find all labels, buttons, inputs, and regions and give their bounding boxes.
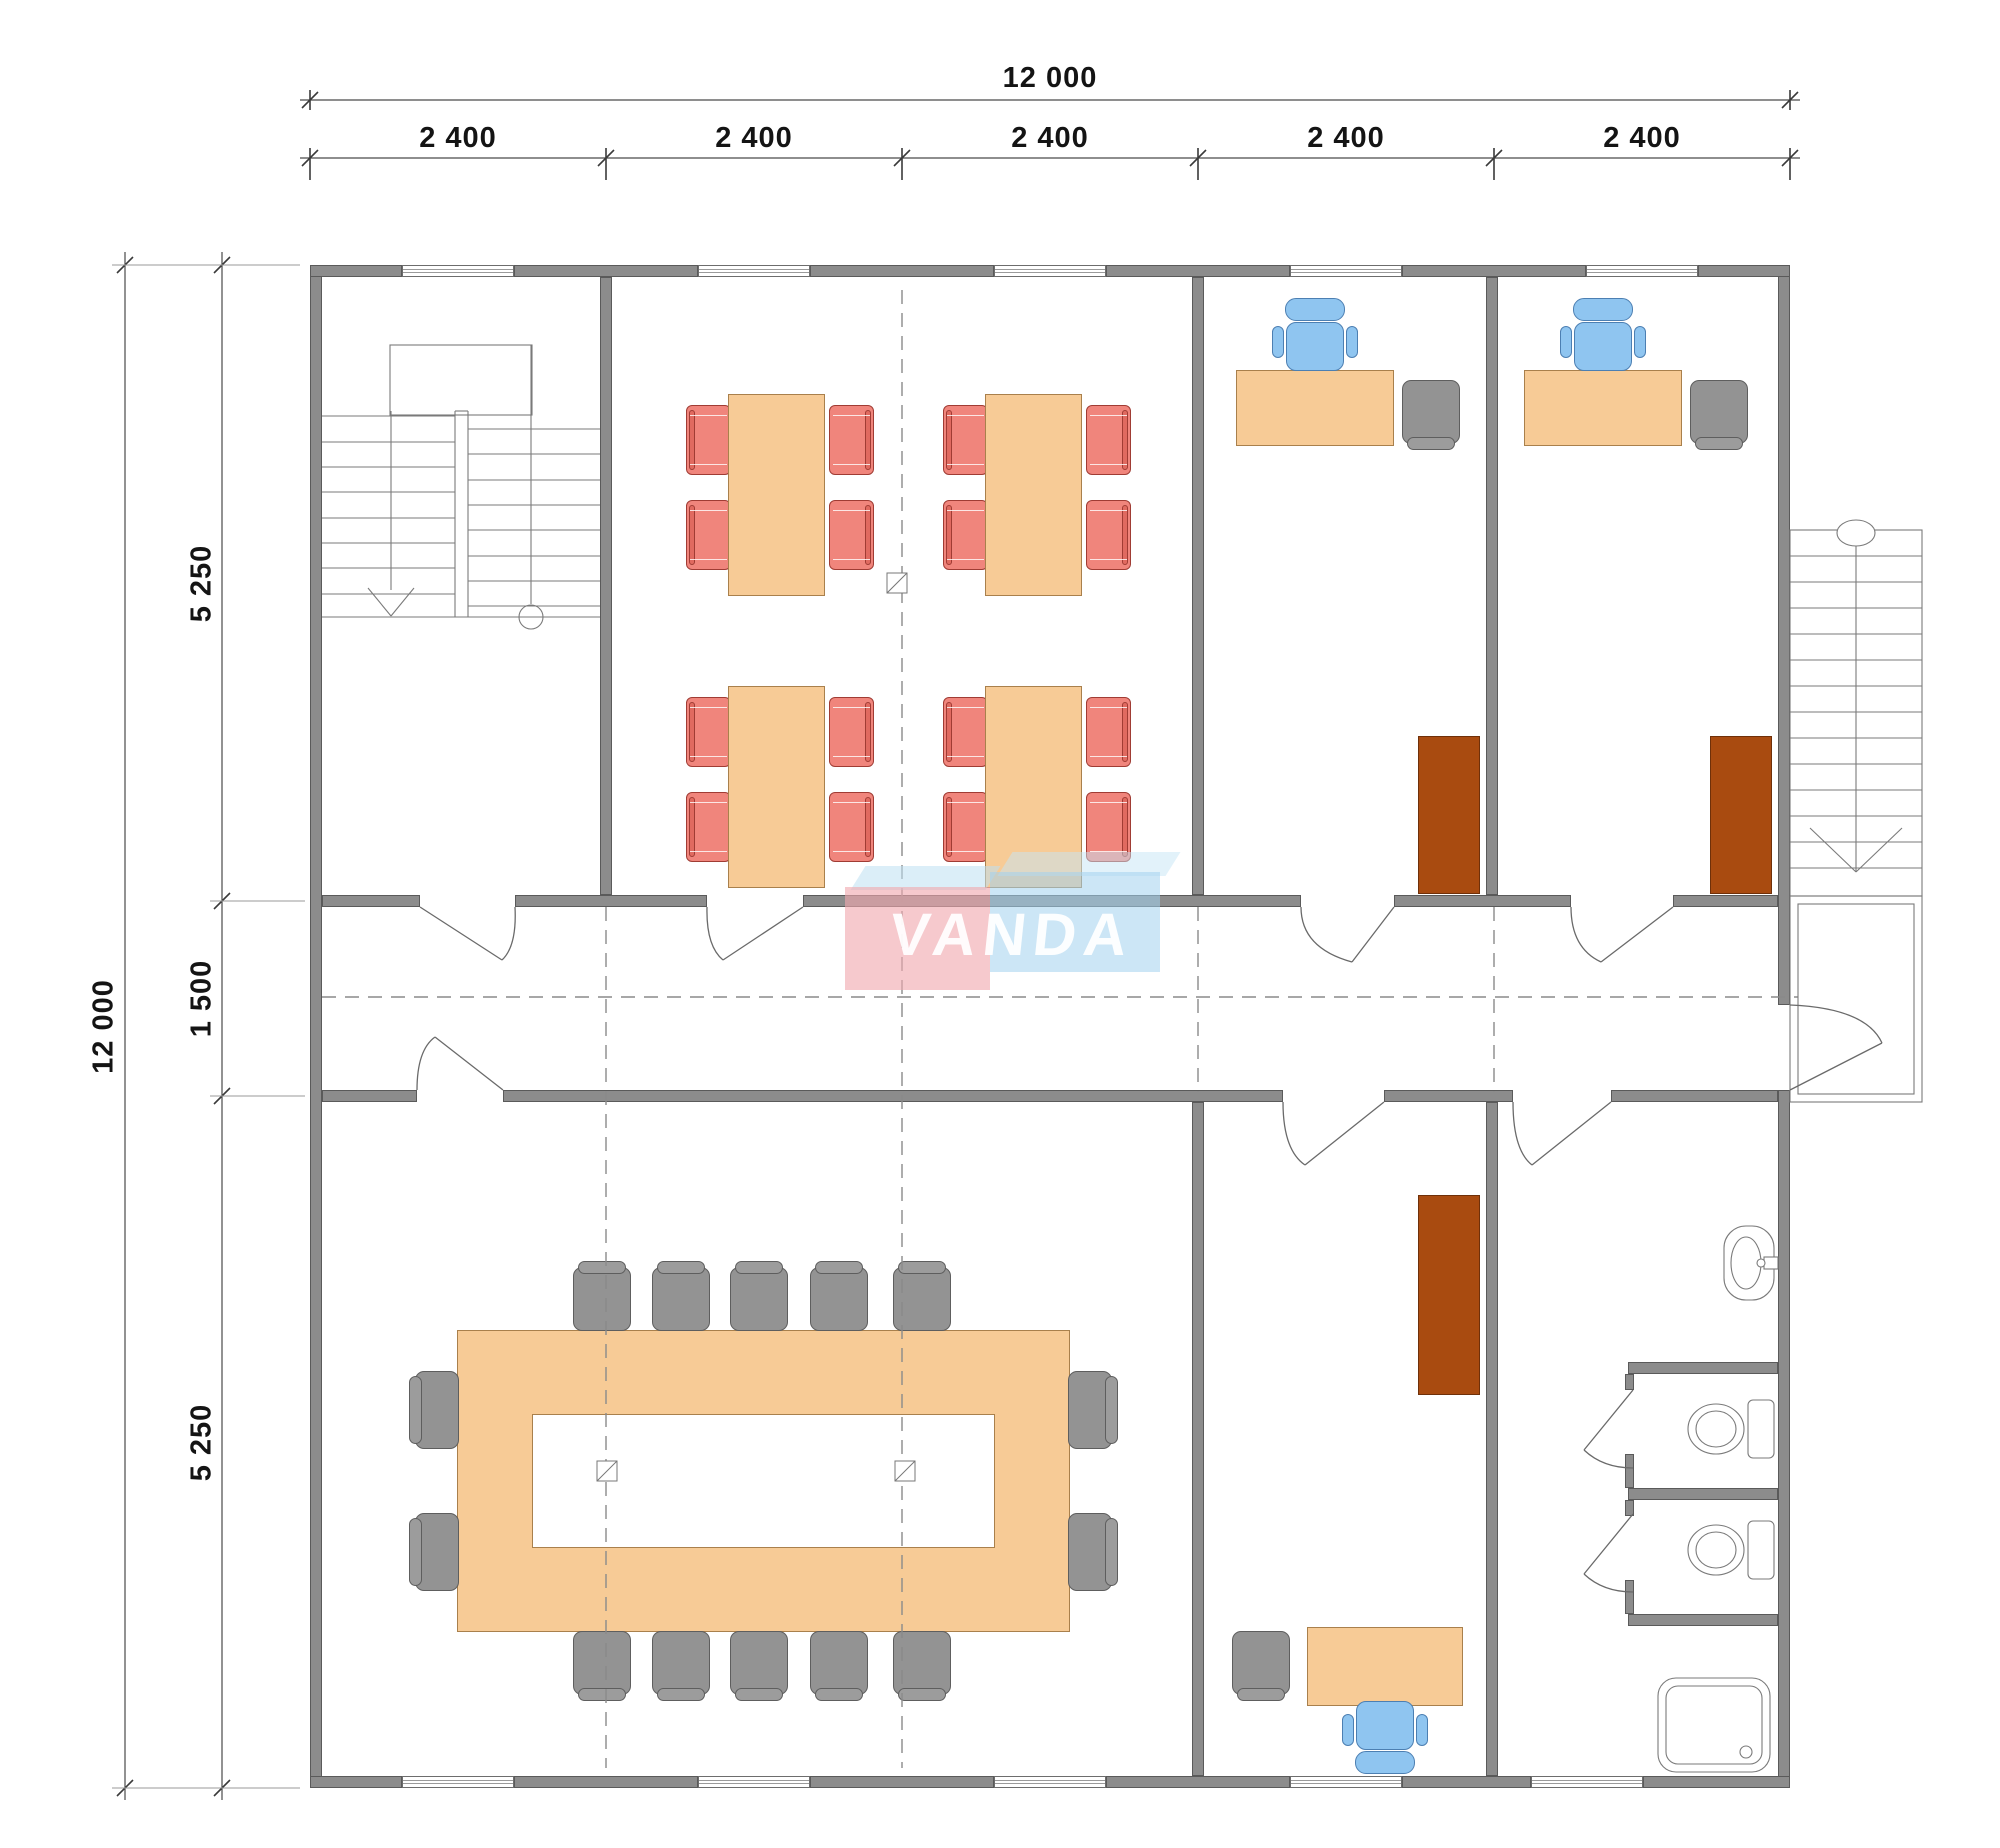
window (1531, 1776, 1643, 1788)
conference-chair (415, 1371, 459, 1449)
task-chair (1272, 298, 1358, 372)
chair-seat (1574, 322, 1632, 371)
conference-chair (1068, 1513, 1112, 1591)
wall-exterior-right-upper (1778, 265, 1790, 1005)
canteen-chair (1086, 500, 1131, 570)
canteen-chair (829, 405, 874, 475)
conference-chair (893, 1631, 951, 1695)
visitor-chair (1690, 380, 1748, 444)
sink-basin (1731, 1237, 1761, 1289)
office-desk (1236, 370, 1394, 446)
office-desk (1307, 1627, 1463, 1706)
canteen-chair (686, 697, 731, 767)
wall-corridor-bottom (1384, 1090, 1513, 1102)
wall-corridor-bottom (503, 1090, 1283, 1102)
wall-corridor-top (1673, 895, 1778, 907)
wall-bottom-seg (1106, 1776, 1290, 1788)
wall-corridor-top (1394, 895, 1571, 907)
toilet-bowl-inner (1696, 1532, 1736, 1568)
sink-tap-knob (1757, 1259, 1765, 1267)
wall-stall-jamb (1625, 1500, 1634, 1516)
dim-row-corridor: 1 500 (186, 919, 219, 1079)
door-bathroom (1513, 1102, 1611, 1165)
conference-chair (573, 1267, 631, 1331)
wall-office1-office2 (1486, 277, 1498, 895)
conference-chair (730, 1267, 788, 1331)
toilet-bowl (1688, 1404, 1744, 1454)
wall-stall-partition (1628, 1614, 1778, 1626)
door-office-1 (1301, 907, 1394, 962)
conference-chair (810, 1631, 868, 1695)
canteen-chair (943, 792, 988, 862)
wall-bottom-seg (514, 1776, 698, 1788)
conference-chair (730, 1631, 788, 1695)
wall-top-seg (514, 265, 698, 277)
window (1290, 1776, 1402, 1788)
dim-bay-5: 2 400 (1572, 122, 1712, 155)
canteen-chair (943, 500, 988, 570)
visitor-chair (1402, 380, 1460, 444)
wall-corridor-top (322, 895, 420, 907)
toilet-bowl-inner (1696, 1411, 1736, 1447)
chair-arm (1634, 326, 1646, 358)
wall-top-seg (1402, 265, 1586, 277)
door-exterior (1790, 1005, 1882, 1090)
wall-corridor-bottom (322, 1090, 417, 1102)
cabinet (1418, 736, 1480, 894)
wall-corridor-bottom (1611, 1090, 1778, 1102)
dim-bay-4: 2 400 (1276, 122, 1416, 155)
canteen-chair (686, 405, 731, 475)
window (698, 1776, 810, 1788)
canteen-chair (829, 697, 874, 767)
chair-arm (1342, 1714, 1354, 1746)
canteen-table (985, 686, 1082, 888)
wall-stair-canteen (600, 277, 612, 895)
canteen-table (985, 394, 1082, 596)
canteen-chair (943, 697, 988, 767)
toilet-bowl (1688, 1525, 1744, 1575)
canteen-chair (1086, 697, 1131, 767)
wall-corridor-top (803, 895, 1301, 907)
chair-arm (1416, 1714, 1428, 1746)
dim-top-total: 12 000 (950, 62, 1150, 95)
canteen-chair (1086, 792, 1131, 862)
chair-headrest (1573, 298, 1633, 321)
wall-bottom-seg (1402, 1776, 1531, 1788)
window (1586, 265, 1698, 277)
canteen-table (728, 394, 825, 596)
floor-plan-canvas: 12 000 2 400 2 400 2 400 2 400 2 400 12 … (0, 0, 2000, 1848)
wall-bottom-seg (310, 1776, 402, 1788)
sink (1724, 1226, 1774, 1300)
window (994, 265, 1106, 277)
chair-seat (1286, 322, 1344, 371)
canteen-chair (1086, 405, 1131, 475)
dim-left-total: 12 000 (88, 947, 121, 1107)
door-stairwell (420, 907, 515, 960)
dim-bay-1: 2 400 (388, 122, 528, 155)
canteen-chair (686, 500, 731, 570)
watermark-bevel (851, 866, 1001, 890)
conference-chair (1068, 1371, 1112, 1449)
shower-drain (1740, 1746, 1752, 1758)
cabinet (1710, 736, 1772, 894)
chair-arm (1272, 326, 1284, 358)
wall-stall-partition (1628, 1362, 1778, 1374)
window (994, 1776, 1106, 1788)
watermark-text: VANDA (848, 898, 1176, 972)
wall-stall-partition (1628, 1488, 1778, 1500)
toilet-tank (1748, 1521, 1774, 1579)
window (402, 1776, 514, 1788)
wall-top-seg (310, 265, 402, 277)
task-chair (1342, 1700, 1428, 1774)
chair-seat (1356, 1701, 1414, 1750)
wall-exterior-right-lower (1778, 1090, 1790, 1788)
canteen-chair (686, 792, 731, 862)
door-conference (417, 1037, 503, 1090)
office-desk (1524, 370, 1682, 446)
chair-arm (1346, 326, 1358, 358)
wall-exterior-left (310, 265, 322, 1788)
wall-corridor-top (515, 895, 707, 907)
door-office-3 (1283, 1102, 1384, 1165)
wall-stall-jamb (1625, 1454, 1634, 1488)
wall-stall-jamb (1625, 1580, 1634, 1614)
wall-office3-bathroom (1486, 1102, 1498, 1776)
canteen-chair (943, 405, 988, 475)
dim-bay-2: 2 400 (684, 122, 824, 155)
visitor-chair (1232, 1631, 1290, 1695)
window (402, 265, 514, 277)
chair-arm (1560, 326, 1572, 358)
door-office-2 (1571, 907, 1673, 962)
wall-bottom-seg (810, 1776, 994, 1788)
wall-top-seg (1106, 265, 1290, 277)
conference-chair (652, 1631, 710, 1695)
conference-chair (652, 1267, 710, 1331)
conference-chair (810, 1267, 868, 1331)
wall-top-seg (1698, 265, 1790, 277)
toilet-tank (1748, 1400, 1774, 1458)
dim-row-top: 5 250 (186, 504, 219, 664)
wall-canteen-office1 (1192, 277, 1204, 895)
conference-chair (415, 1513, 459, 1591)
wall-conference-office3 (1192, 1102, 1204, 1776)
wall-stall-jamb (1625, 1374, 1634, 1390)
shower-tray (1658, 1678, 1770, 1772)
conference-chair (893, 1267, 951, 1331)
conference-table-opening (532, 1414, 995, 1548)
window (1290, 265, 1402, 277)
conference-chair (573, 1631, 631, 1695)
chair-headrest (1285, 298, 1345, 321)
canteen-chair (829, 500, 874, 570)
window (698, 265, 810, 277)
chair-headrest (1355, 1751, 1415, 1774)
external-stair (1790, 520, 1922, 1102)
sink-tap (1764, 1257, 1778, 1269)
shower-tray-inner (1666, 1686, 1762, 1764)
door-canteen (707, 907, 803, 960)
internal-stair (322, 345, 600, 629)
task-chair (1560, 298, 1646, 372)
cabinet (1418, 1195, 1480, 1395)
canteen-chair (829, 792, 874, 862)
canteen-table (728, 686, 825, 888)
dim-bay-3: 2 400 (980, 122, 1120, 155)
wall-top-seg (810, 265, 994, 277)
dim-row-bottom: 5 250 (186, 1363, 219, 1523)
wall-bottom-seg (1643, 1776, 1790, 1788)
